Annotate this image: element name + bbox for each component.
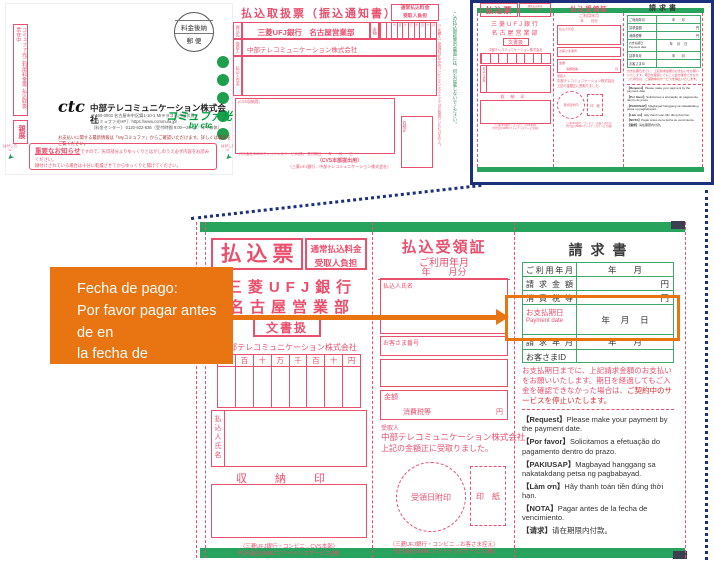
peel-mark-1: はがし方① ➤ [2, 144, 18, 162]
payee-name: 中部テレコミュニケーション株式会社 [209, 342, 369, 353]
mini-customer-box: お客さま番号 [557, 47, 621, 57]
payment-slip-column: 払込票 通常払込料金 受取人負担 三菱UFJ銀行 名古屋営業部 文書扱 中部テレ… [209, 232, 369, 548]
mini-cut-line [477, 13, 478, 167]
envelope: コミュファ光ご利用料金等 払込取扱票在中 親展 料金後納 郵 便 ctc 中部テ… [5, 3, 233, 175]
digit-cell [516, 54, 525, 63]
document-handling-badge: 文書扱 [253, 318, 321, 337]
mini-tr-text: Pagar antes de la fecha de vencimiento. [641, 118, 695, 122]
mini-digit-boxes [480, 53, 551, 64]
callout-line2: Por favor pagar antes de en [77, 301, 233, 345]
back-note-vertical: この払込取扱票の裏面には、何も記載しないでください。 [452, 12, 458, 164]
digit-cell [481, 54, 490, 63]
callout-line3: la fecha de vencimiento. [77, 344, 233, 388]
translation-tag: 【Request】 [522, 415, 567, 424]
cvs-box: (CVS収納用) [235, 98, 395, 154]
green-dot-icon [217, 56, 229, 68]
translation-item: 【Làm ơn】Hãy thanh toán tiền đúng thời hạ… [522, 482, 675, 501]
mini-fee2: 受取人負担 [520, 8, 550, 11]
fee-line1: 通常払込料金 [392, 5, 438, 13]
callout-arrow [233, 315, 497, 320]
translation-item: 【Por favor】Solicitamos a efetuação do pa… [522, 437, 675, 456]
recipient-name: 中部テレコミュニケーション株式会社 [381, 431, 525, 443]
important-notice-title: 重要なお知らせ [35, 148, 80, 155]
translation-tag: 【Làm ơn】 [522, 482, 564, 491]
payee-row-label: 受取人 [233, 39, 242, 56]
translation-item: 【Request】Please make your payment by the… [522, 415, 675, 434]
cut-line [685, 222, 686, 558]
fee-line2: 受取人負担 [392, 13, 438, 21]
peel-arrow-icon: ➤ [4, 151, 16, 163]
mini-invoice-label: 消費税等 [628, 32, 657, 39]
invoice-row-value: 円 [577, 277, 673, 290]
bank-name: 三菱UFJ銀行 名古屋営業部 [242, 22, 370, 39]
payee-name: 中部テレコミュニケーション株式会社 [242, 39, 437, 56]
mini-translation: 【Làm ơn】Hãy thanh toán tiền đúng thời hạ… [627, 114, 701, 118]
requester-side-note: （ご依頼人）受領証は払込みコンビニエンスストアではお取扱いいただけません。 [437, 22, 442, 162]
digit-box [235, 367, 253, 408]
mini-tax-label: 消費税等 [566, 67, 578, 71]
fee-line2: 受取人負担 [307, 256, 365, 270]
mini-invoice-value: 年 月 [657, 16, 700, 23]
mini-divider [627, 84, 701, 85]
digit-box [324, 367, 342, 408]
mini-payer-label: 払込人氏名 [480, 65, 487, 93]
invoice-row-label: ご利用年月 [523, 263, 577, 276]
cut-line [372, 222, 373, 558]
enlarged-slip: 払込票 通常払込料金 受取人負担 三菱UFJ銀行 名古屋営業部 文書扱 中部テレ… [193, 215, 690, 563]
mini-notice-em: ご契約中のサービスを停止いたします。 [645, 77, 699, 81]
yen-label: 円 [496, 407, 503, 417]
postmark-line1: 料金後納 [175, 20, 213, 34]
fee-line1: 通常払込料金 [307, 242, 365, 256]
mini-col2-footer2: 代行会社SMBCファイナンスサービス(株) [557, 125, 621, 128]
mini-tr-tag: 【NOTA】 [627, 118, 641, 122]
mini-invoice-value: 年 月 [657, 52, 700, 59]
mini-bank2: 名古屋営業部 [480, 28, 551, 37]
bank-line2: 名古屋営業部 [209, 296, 369, 317]
digit-cell [533, 54, 542, 63]
payer-box: 払込人氏名 [380, 278, 508, 334]
received-note: 上記の金額正に受取りました。 [381, 443, 493, 454]
digit-box [253, 367, 271, 408]
digit-cell [541, 54, 550, 63]
handling-footer1: （CVS本部提出用） [233, 157, 446, 164]
translation-tag: 【请求】 [522, 526, 552, 535]
invoice-row-label: 請求金額 [523, 277, 577, 290]
green-band-top [200, 222, 685, 232]
translation-tag: 【NOTA】 [522, 504, 558, 513]
important-notice-text2: 糊付けされている場合は十分に乾燥させてからゆっくりと開けてください。 [35, 163, 211, 169]
invoice-title: 請求書 [520, 240, 675, 260]
invoice-notice: お支払期日までに、上記請求金額のお支払いをお願いいたします。期日を経過してもご入… [522, 366, 674, 406]
payment-date-highlight-box [505, 295, 680, 341]
postage-stamp-icon: 料金後納 郵 便 [174, 12, 214, 52]
digit-box [289, 367, 307, 408]
digit-cell: 円 [430, 23, 436, 38]
payment-guide-page: コミュファ光ご利用料金等 払込取扱票在中 親展 料金後納 郵 便 ctc 中部テ… [0, 0, 714, 564]
handling-slip-title: 払込取扱票（振込通知書） [241, 5, 397, 21]
bank-line1: 三菱UFJ銀行 [209, 276, 369, 297]
confidential-label: 親展 [13, 120, 28, 144]
by-ctc-logo: by ctc [189, 121, 212, 130]
mini-translation: 【Por favor】Solicitamos a efetuação do pa… [627, 96, 701, 104]
fee-box: 通常払込料金 受取人負担 [391, 4, 439, 21]
bank-row-label: 振込先 [233, 22, 242, 39]
mini-cut-line [702, 13, 703, 167]
translation-text: 请在期限内付款。 [552, 526, 612, 535]
mini-invoice-column: 請求書 ご利用年月年 月 請求金額円 消費税等円 お支払期日Payment da… [627, 3, 701, 129]
mini-slip-frame: 払込票 通常払込料金 受取人負担 三菱UFJ銀行 名古屋営業部 文書扱 中部テレ… [470, 0, 714, 185]
mini-amount-box: 金額 消費税等 円 [557, 59, 621, 73]
mini-col1-footer2: 代行会社SMBCファイナンスサービス(株) [480, 127, 551, 130]
mini-payer-box2: 払込人氏名 [557, 25, 621, 45]
invoice-row-value: 年 月 [577, 263, 673, 276]
mini-invoice-value: 年 月 日 [657, 40, 700, 51]
date-stamp-circle: 受領日附印 [396, 462, 466, 532]
mini-tr-text: 请在期限内付款。 [639, 123, 663, 127]
mini-invoice-value [657, 60, 700, 67]
mini-invoice-title: 請求書 [627, 3, 701, 13]
digit-box [342, 367, 361, 408]
digit-header: 十 [253, 354, 271, 367]
envelope-side-label: コミュファ光ご利用料金等 払込取扱票在中 [13, 24, 28, 116]
amount-box: 金額 消費税等 円 [380, 390, 508, 420]
invoice-column: 請求書 ご利用年月 年 月 請求金額 円 消費税等 円 お支払期日 [520, 232, 681, 548]
tax-label: 消費税等 [403, 407, 431, 417]
mini-invoice-label: 請求金額 [628, 24, 657, 31]
mini-tr-tag: 【Làm ơn】 [627, 113, 644, 117]
digit-header: 万 [271, 354, 289, 367]
amount-label: 金額 [370, 22, 379, 39]
callout-line1: Fecha de pago: [77, 279, 233, 301]
digit-cell [524, 54, 533, 63]
registration-mark [671, 221, 685, 229]
mini-invoice-value: 円 [657, 24, 700, 31]
mini-receipt-title: 払込受領証 [557, 3, 621, 13]
mini-tr-text: Hãy thanh toán tiền đúng thời hạn. [644, 113, 690, 117]
mini-amount-label: 金額 [559, 61, 565, 65]
mini-green-band-bottom [477, 167, 704, 172]
zoom-connector-vertical [705, 190, 708, 560]
customer-number-box: お客さま番号 [380, 336, 508, 356]
payer-row-label: 払込人氏名 [233, 56, 242, 96]
mini-doc-badge: 文書扱 [503, 38, 529, 46]
mini-translation: 【Request】Please make your payment by the… [627, 87, 701, 95]
mini-payment-slip-column: 払込票 通常払込料金 受取人負担 三菱UFJ銀行 名古屋営業部 文書扱 中部テレ… [480, 3, 551, 131]
col1-footer2: 代行会社SMBCファイナンスサービス(株) [209, 549, 369, 557]
translation-item: 【NOTA】Pagar antes de la fecha de vencimi… [522, 504, 675, 523]
stamp-box [211, 484, 367, 538]
mini-date-stamp-circle: 受領日附印 [557, 91, 585, 119]
mini-translation: 【请求】请在期限内付款。 [627, 124, 701, 128]
digit-header: 百 [235, 354, 253, 367]
digit-header: 千 [289, 354, 307, 367]
mini-invoice-notice: お支払期日までに、上記請求金額のお支払いをお願いいたします。期日を経過してもご入… [627, 70, 701, 82]
postmark-line2: 郵 便 [175, 34, 213, 45]
mini-fee-box: 通常払込料金 受取人負担 [519, 3, 551, 17]
blank-box [380, 359, 508, 387]
digit-header-row: 千 百 十 万 千 百 十 円 [217, 354, 361, 367]
payer-name-box [242, 56, 437, 96]
mini-payee: 中部テレコミュニケーション株式会社 [480, 47, 551, 52]
translation-item: 【请求】请在期限内付款。 [522, 526, 675, 535]
payment-slip-title: 払込票 [211, 238, 303, 270]
ctc-logo: ctc [58, 97, 85, 116]
amount-label: 金額 [384, 392, 398, 402]
digit-box-row [217, 367, 361, 408]
mini-receipt-sub2: 年 月分 [557, 19, 621, 24]
mini-bank1: 三菱UFJ銀行 [480, 19, 551, 28]
mini-invoice-label: ご利用年月 [628, 16, 657, 23]
digit-box [271, 367, 289, 408]
notice-divider [522, 409, 674, 410]
mini-receipt-column: 払込受領証 ご利用年月 年 月分 払込人氏名 お客さま番号 金額 消費税等 円 … [557, 3, 621, 129]
cut-line [514, 222, 515, 558]
important-notice-box: 重要なお知らせですので、矢印部分よりゆっくりとはがしのうえ必ず内容をお読みくださ… [29, 143, 217, 170]
callout-arrowhead-icon [496, 309, 509, 325]
translation-tag: 【PAKIUSAP】 [522, 460, 575, 469]
amount-digit-boxes: 千 百 十 万 千 百 十 円 [379, 22, 437, 39]
translation-item: 【PAKIUSAP】Magbayad hanggang sa nakatakda… [522, 460, 675, 479]
revenue-stamp-box: 印 紙 [470, 466, 506, 526]
invoice-row: ご利用年月 年 月 [522, 262, 674, 277]
mini-stamp-box [480, 100, 551, 124]
payer-label: 払込人氏名 [211, 410, 225, 467]
receipt-column: 払込受領証 ご利用年月 年 月分 払込人氏名 お客さま番号 金額 消費税等 円 … [378, 232, 510, 548]
mini-payer-box [487, 65, 551, 93]
handling-slip: 払込取扱票（振込通知書） 通常払込料金 受取人負担 振込先 受取人 払込人氏名 … [233, 4, 446, 170]
invoice-row-label: お客さまID [523, 350, 577, 362]
fee-box: 通常払込料金 受取人負担 [305, 238, 367, 270]
mini-yen: 円 [615, 67, 618, 71]
mini-cut-line [623, 13, 624, 167]
mini-revenue-stamp: 印 紙 [587, 94, 603, 116]
digit-box [306, 367, 324, 408]
payer-name-box [225, 410, 367, 467]
mini-invoice-label: 請求年月 [628, 52, 657, 59]
digit-header: 百 [306, 354, 324, 367]
mini-invoice-label: お客さまID [628, 60, 657, 67]
mini-tr-tag: 【请求】 [627, 123, 639, 127]
spanish-callout: Fecha de pago: Por favor pagar antes de … [50, 267, 233, 364]
handling-footer2: （三菱UFJ銀行→中部テレコミュニケーション株式会社） [233, 164, 446, 170]
mini-invoice-value: 円 [657, 32, 700, 39]
mini-payment-date-sublabel: Payment date [629, 45, 646, 49]
invoice-row: お客さまID [522, 350, 674, 363]
digit-cell [490, 54, 499, 63]
translation-tag: 【Por favor】 [522, 437, 570, 446]
invoice-row-value [577, 350, 673, 362]
invoice-row: 請求金額 円 [522, 277, 674, 291]
digit-header: 円 [342, 354, 361, 367]
green-dot-icon [217, 74, 229, 86]
digit-cell [507, 54, 516, 63]
mini-payment-slip-title: 払込票 [480, 3, 518, 17]
mini-translation: 【PAKIUSAP】Magbayad hanggang sa nakatakda… [627, 105, 701, 113]
digit-header: 十 [324, 354, 342, 367]
mini-cut-line [553, 13, 554, 167]
digit-cell [498, 54, 507, 63]
mini-received-note: 上記の金額正に受取りました。 [557, 83, 621, 88]
col2-footer2: 代行会社SMBCファイナンスサービス(株) [378, 547, 510, 555]
